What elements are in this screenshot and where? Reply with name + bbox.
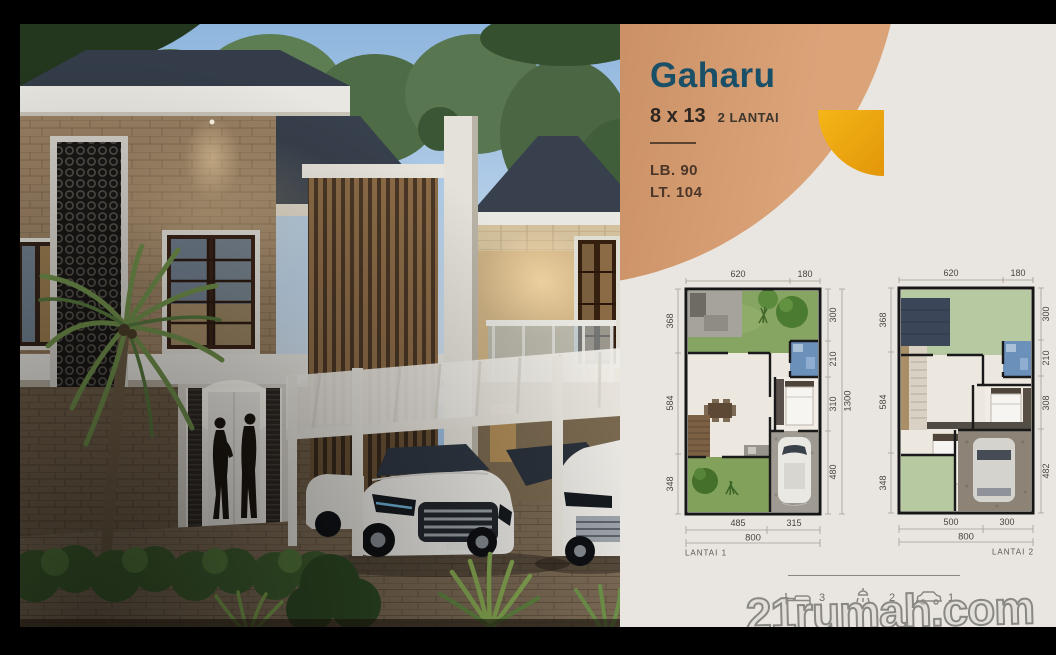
info-panel: Gaharu 8 x 132 LANTAI LB. 90 LT. 104	[620, 24, 1056, 627]
unit-floors: 2 LANTAI	[718, 110, 780, 125]
building-area-label: LB. 90	[650, 162, 698, 179]
house-render-photo	[20, 24, 620, 627]
dim-label: 300	[1041, 306, 1051, 321]
dim-label: 620	[730, 269, 745, 279]
house-render-illustration	[20, 24, 620, 627]
dim-label: 315	[786, 518, 801, 528]
dim-label: 210	[828, 351, 838, 366]
dim-label: 480	[828, 464, 838, 479]
dim-total-label: 800	[745, 533, 761, 544]
vignette	[20, 24, 620, 627]
dim-label: 300	[828, 307, 838, 322]
dim-label: 485	[730, 518, 745, 528]
dim-label: 310	[828, 396, 838, 411]
floorplan-2-rooms	[899, 288, 1033, 513]
brochure-frame: Gaharu 8 x 132 LANTAI LB. 90 LT. 104	[0, 0, 1056, 655]
dim-total-label: 800	[958, 532, 974, 543]
unit-name-title: Gaharu	[650, 56, 776, 96]
dim-label: 210	[1041, 350, 1051, 365]
floorplan-2-name: LANTAI 2	[992, 548, 1034, 557]
dim-label: 348	[878, 475, 888, 490]
dim-label: 500	[943, 517, 958, 527]
floorplan-lantai-2	[877, 266, 1056, 554]
dim-label: 180	[797, 269, 812, 279]
dim-label: 348	[665, 476, 675, 491]
dim-total-label: 1300	[843, 390, 854, 411]
unit-dimensions: 8 x 13	[650, 105, 706, 127]
dim-label: 584	[665, 395, 675, 410]
dim-label: 308	[1041, 395, 1051, 410]
floorplan-1-rooms	[686, 289, 820, 514]
land-area-label: LT. 104	[650, 184, 702, 201]
dim-label: 300	[999, 517, 1014, 527]
watermark: 21rumah.com	[715, 579, 1056, 627]
dim-label: 584	[878, 394, 888, 409]
title-divider	[650, 142, 696, 144]
legend-divider	[788, 575, 960, 576]
dim-label: 368	[878, 312, 888, 327]
dim-label: 620	[943, 268, 958, 278]
amber-quarter-decoration	[818, 110, 884, 176]
floorplan-1-name: LANTAI 1	[685, 549, 727, 558]
dim-label: 180	[1010, 268, 1025, 278]
dim-label: 482	[1041, 463, 1051, 478]
unit-size-row: 8 x 132 LANTAI	[650, 105, 779, 128]
dim-label: 368	[665, 313, 675, 328]
